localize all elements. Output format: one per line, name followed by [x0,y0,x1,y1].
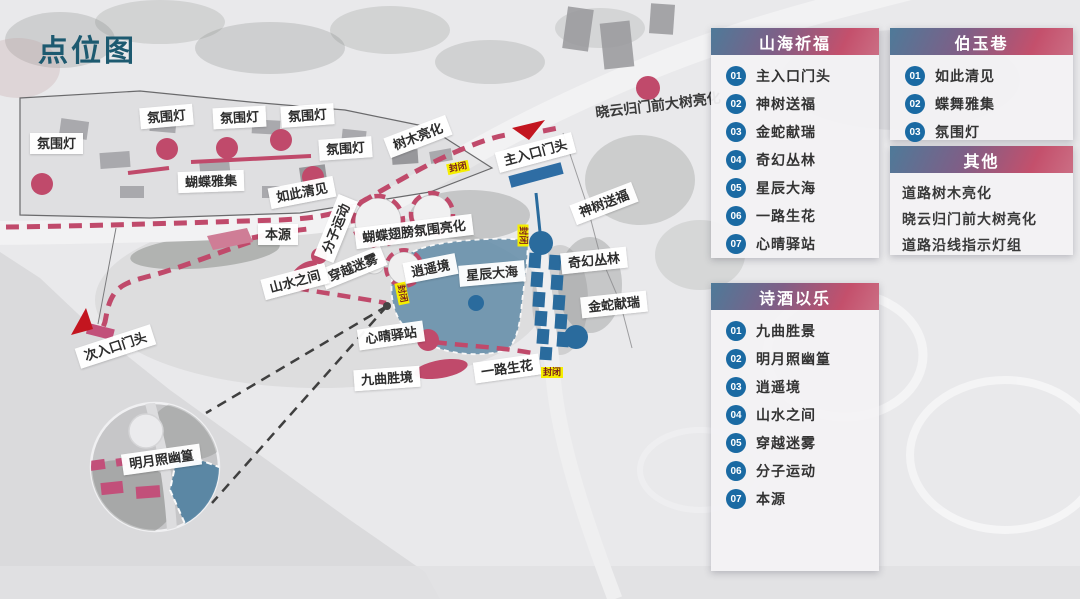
item-number-badge: 05 [726,178,746,198]
item-number-badge: 03 [905,122,925,142]
map-label-ambient-light-5: 氛围灯 [318,136,372,161]
legend-item: 02 蝶舞雅集 [890,90,1073,118]
legend-item: 04 奇幻丛林 [711,146,879,174]
item-number-badge: 03 [726,377,746,397]
point-map-slide: 点位图 氛围灯 氛围灯 氛围灯 氛围灯 氛围灯 蝴蝶雅集 如此清见 树木亮化 主… [0,0,1080,599]
panel-shijiu: 诗酒以乐 01 九曲胜景 02 明月照幽篁 03 逍遥境 04 山水之间 05 … [711,283,879,571]
item-number-badge: 07 [726,489,746,509]
legend-item: 03 逍遥境 [711,373,879,401]
panel-shanhai-title: 山海祈福 [711,28,879,55]
map-label-butterfly-gathering: 蝴蝶雅集 [178,170,245,193]
page-title: 点位图 [38,26,137,70]
closed-tag-4: 封闭 [541,367,563,378]
item-number-badge: 06 [726,206,746,226]
river-band [0,566,1080,599]
map-label-ambient-light-3: 氛围灯 [212,106,266,130]
legend-item: 03 金蛇献瑞 [711,118,879,146]
map-label-ambient-light-4: 氛围灯 [280,103,334,128]
legend-item: 05 穿越迷雾 [711,429,879,457]
item-number-badge: 01 [726,66,746,86]
callout-origin-dot [383,302,391,310]
legend-item: 07 心晴驿站 [711,230,879,258]
map-label-origin: 本源 [258,224,298,245]
item-number-badge: 05 [726,433,746,453]
legend-item: 01 如此清见 [890,62,1073,90]
panel-qita: 其他 道路树木亮化 晓云归门前大树亮化 道路沿线指示灯组 [890,146,1073,255]
legend-item: 道路树木亮化 [890,180,1073,206]
panel-shijiu-title: 诗酒以乐 [711,283,879,310]
legend-item: 01 主入口门头 [711,62,879,90]
legend-item: 06 一路生花 [711,202,879,230]
closed-tag-2: 封闭 [518,224,529,246]
item-number-badge: 04 [726,405,746,425]
item-number-badge: 04 [726,150,746,170]
panel-boyu: 伯玉巷 01 如此清见 02 蝶舞雅集 03 氛围灯 [890,28,1073,140]
legend-item: 04 山水之间 [711,401,879,429]
legend-item: 07 本源 [711,485,879,513]
map-label-ambient-light-1: 氛围灯 [30,133,83,154]
item-number-badge: 01 [726,321,746,341]
legend-item: 05 星辰大海 [711,174,879,202]
panel-qita-title: 其他 [890,146,1073,173]
legend-item: 02 神树送福 [711,90,879,118]
legend-item: 03 氛围灯 [890,118,1073,146]
item-number-badge: 02 [726,349,746,369]
item-number-badge: 01 [905,66,925,86]
legend-item: 晓云归门前大树亮化 [890,206,1073,232]
legend-item: 道路沿线指示灯组 [890,232,1073,258]
legend-item: 02 明月照幽篁 [711,345,879,373]
panel-shanhai: 山海祈福 01 主入口门头 02 神树送福 03 金蛇献瑞 04 奇幻丛林 05… [711,28,879,258]
panel-boyu-title: 伯玉巷 [890,28,1073,55]
item-number-badge: 07 [726,234,746,254]
legend-item: 01 九曲胜景 [711,317,879,345]
item-number-badge: 02 [905,94,925,114]
item-number-badge: 03 [726,122,746,142]
item-number-badge: 06 [726,461,746,481]
item-number-badge: 02 [726,94,746,114]
legend-item: 06 分子运动 [711,457,879,485]
